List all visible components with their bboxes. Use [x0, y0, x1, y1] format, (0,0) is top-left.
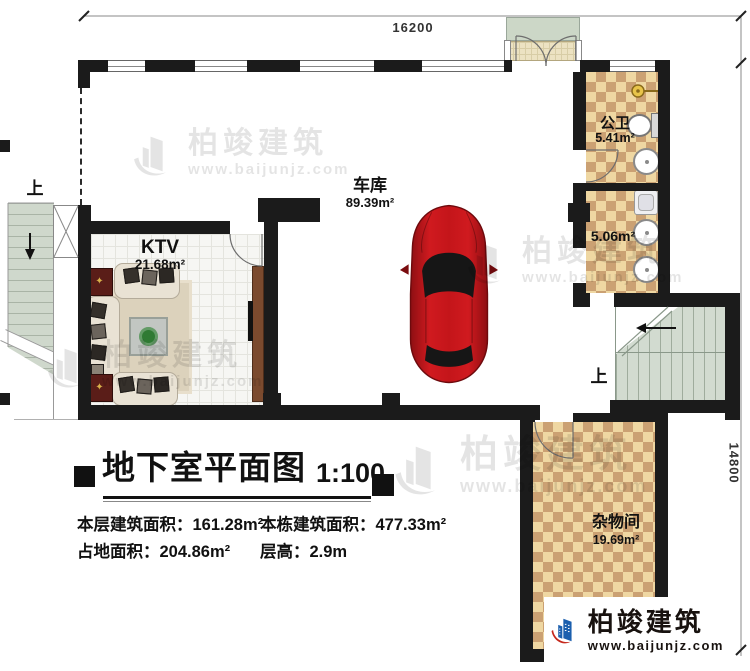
- watermark: 柏竣建筑 www.baijunjz.com: [128, 128, 349, 180]
- wall: [78, 60, 90, 88]
- ktv-tv: [248, 301, 253, 341]
- wall-column: [382, 393, 400, 405]
- window: [422, 60, 504, 72]
- company-website: www.baijunjz.com: [588, 639, 724, 652]
- dimension-top: 16200: [383, 20, 443, 35]
- stat-value: 2.9m: [310, 543, 348, 561]
- stat-value: 161.28m²: [193, 516, 264, 534]
- window: [108, 60, 145, 72]
- title-underline-thick: [103, 496, 371, 499]
- title-bullet-left: [74, 466, 95, 487]
- stat-label: 占地面积：: [77, 543, 160, 561]
- watermark-website: www.baijunjz.com: [188, 159, 349, 180]
- wall: [586, 183, 668, 191]
- window: [610, 60, 655, 72]
- wall-stub: [0, 140, 10, 152]
- watermark-company: 柏竣建筑: [188, 129, 349, 159]
- garage-opening-dashed-line: [80, 88, 82, 205]
- wall: [78, 405, 540, 420]
- sofa-pillow: [118, 376, 135, 393]
- stat-label: 层高：: [260, 543, 310, 561]
- sofa-pillow: [90, 302, 107, 319]
- ground-line: [14, 419, 78, 420]
- ktv-label: KTV: [128, 238, 192, 258]
- company-name: 柏竣建筑: [588, 609, 724, 635]
- wall: [610, 400, 740, 413]
- wall: [573, 293, 590, 307]
- wall: [614, 293, 740, 307]
- stat-label: 本层建筑面积：: [77, 516, 193, 534]
- garage-label: 车库: [330, 177, 410, 195]
- storage-area: 19.69m²: [590, 534, 642, 547]
- wall-stub: [0, 393, 10, 405]
- entry-door-jamb-left: [504, 40, 511, 61]
- light-well-window-box: [53, 205, 79, 258]
- bathroom-label: 公卫: [592, 116, 638, 132]
- sofa-pillow: [153, 376, 169, 392]
- stat-value: 204.86m²: [160, 543, 231, 561]
- stat-label: 本栋建筑面积：: [260, 516, 376, 534]
- company-logo-icon: [550, 603, 581, 657]
- window: [300, 60, 374, 72]
- storage-label: 杂物间: [586, 515, 646, 532]
- company-logo: 柏竣建筑 www.baijunjz.com: [544, 597, 730, 663]
- wall: [145, 60, 195, 72]
- ktv-area: 21.68m²: [124, 258, 196, 272]
- table-plant: [139, 327, 158, 346]
- stat-floor-area: 本层建筑面积：161.28m²: [77, 511, 263, 535]
- stat-building-area: 本栋建筑面积：477.33m²: [260, 511, 446, 535]
- watermark-logo-icon: [128, 128, 180, 180]
- sofa-pillow: [90, 344, 107, 361]
- page-title: 地下室平面图: [102, 451, 306, 486]
- sofa-pillow: [90, 323, 106, 339]
- stat-footprint-area: 占地面积：204.86m²: [77, 538, 230, 562]
- washroom-sink: [633, 256, 660, 283]
- washroom-area: 5.06m²: [586, 229, 640, 244]
- entry-door-jamb-right: [575, 40, 582, 61]
- title-underline-thin: [103, 501, 371, 502]
- wall: [573, 72, 586, 150]
- wall: [258, 198, 320, 222]
- garage-area: 89.39m²: [330, 196, 410, 210]
- wall: [247, 60, 300, 72]
- wall: [78, 205, 91, 420]
- stat-value: 477.33m²: [376, 516, 447, 534]
- bathroom-sink: [633, 148, 660, 175]
- wall-column: [568, 203, 590, 222]
- title-bullet-right: [372, 474, 394, 496]
- wall: [580, 60, 610, 72]
- wall: [504, 60, 512, 72]
- ktv-tv-cabinet: [252, 266, 264, 402]
- wall: [655, 60, 670, 72]
- wall: [374, 60, 422, 72]
- bathroom-area: 5.41m²: [589, 132, 641, 145]
- window: [195, 60, 247, 72]
- watermark-logo-icon: [388, 436, 452, 500]
- wall: [658, 72, 670, 307]
- dimension-right: 14800: [727, 443, 742, 483]
- entry-vestibule-floor: [506, 41, 580, 61]
- entry-canopy: [506, 17, 580, 41]
- wall: [520, 420, 533, 662]
- stat-floor-height: 层高：2.9m: [260, 538, 347, 562]
- washing-machine-drum: [638, 194, 654, 211]
- wall: [573, 413, 668, 422]
- stair-up-label-right: 上: [588, 368, 610, 386]
- wall: [264, 222, 278, 420]
- sofa-pillow: [136, 378, 152, 394]
- wall: [78, 221, 230, 234]
- car-top-view: [399, 199, 499, 391]
- stair-up-label-left: 上: [24, 180, 46, 198]
- interior-stairs-divider: [616, 352, 725, 353]
- floor-plan-canvas: ✦ ✦: [0, 0, 750, 671]
